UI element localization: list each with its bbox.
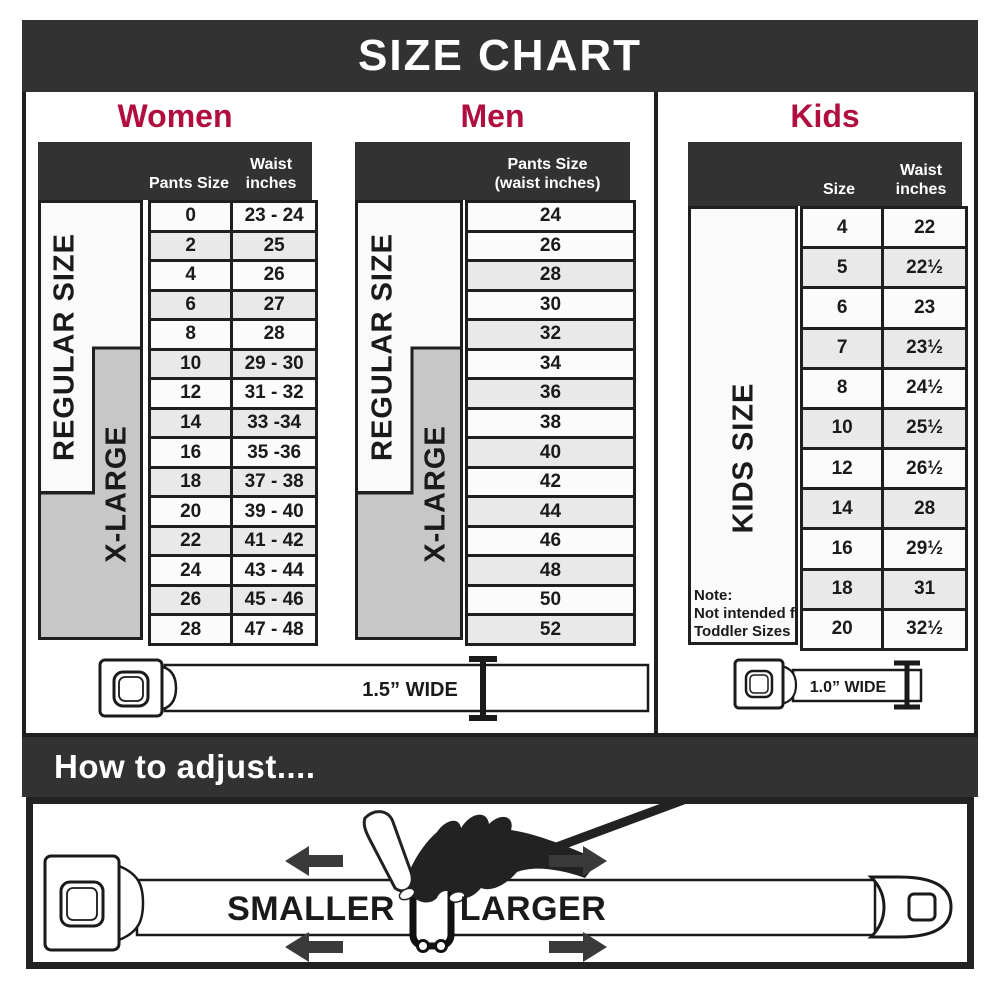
table-row: 14 28 xyxy=(803,490,965,527)
men-heading: Men xyxy=(355,98,630,135)
size-cell: 6 xyxy=(803,289,881,326)
table-row: 52 xyxy=(468,616,633,643)
size-chart-banner: SIZE CHART xyxy=(22,20,978,92)
arrow-left-bottom-icon xyxy=(285,932,343,962)
table-row: 50 xyxy=(468,587,633,614)
waist-cell: 24½ xyxy=(884,370,965,407)
table-row: 18 37 - 38 xyxy=(151,469,315,496)
size-cell: 44 xyxy=(468,498,633,525)
size-cell: 38 xyxy=(468,410,633,437)
larger-label: LARGER xyxy=(460,890,607,928)
size-cell: 42 xyxy=(468,469,633,496)
kids-note-line1: Note: xyxy=(694,587,732,604)
waist-cell: 47 - 48 xyxy=(233,616,315,643)
waist-cell: 35 -36 xyxy=(233,439,315,466)
table-row: 0 23 - 24 xyxy=(151,203,315,230)
waist-cell: 41 - 42 xyxy=(233,528,315,555)
size-cell: 32 xyxy=(468,321,633,348)
waist-cell: 23 xyxy=(884,289,965,326)
kids-rows: 4 22 5 22½ 6 23 7 23½ 8 24½ 10 25½ 12 26… xyxy=(800,206,968,651)
waist-cell: 31 xyxy=(884,571,965,608)
table-row: 48 xyxy=(468,557,633,584)
table-row: 30 xyxy=(468,292,633,319)
waist-cell: 45 - 46 xyxy=(233,587,315,614)
buckle-button-inner xyxy=(67,888,97,920)
waist-cell: 28 xyxy=(233,321,315,348)
buckle-button-inner xyxy=(119,677,143,701)
waist-cell: 26 xyxy=(233,262,315,289)
women-size-range-labels: REGULAR SIZE X-LARGE xyxy=(38,200,143,640)
table-row: 24 xyxy=(468,203,633,230)
kids-note-line3: Toddler Sizes (T) xyxy=(694,623,798,640)
size-cell: 12 xyxy=(803,450,881,487)
adjust-illustration: SMALLER LARGER xyxy=(33,804,967,962)
kids-table-header: Size Waist inches xyxy=(688,142,962,206)
table-row: 12 26½ xyxy=(803,450,965,487)
size-cell: 20 xyxy=(151,498,230,525)
table-row: 36 xyxy=(468,380,633,407)
size-cell: 18 xyxy=(151,469,230,496)
women-heading: Women xyxy=(38,98,312,135)
table-row: 10 29 - 30 xyxy=(151,351,315,378)
regular-size-label: REGULAR SIZE xyxy=(367,233,399,461)
kids-belt-illustration: 1.0” WIDE xyxy=(725,652,973,714)
size-cell: 24 xyxy=(468,203,633,230)
kids-note-line2: Not intended for xyxy=(694,605,798,622)
men-size-range-labels: REGULAR SIZE X-LARGE xyxy=(355,200,463,640)
x-large-label: X-LARGE xyxy=(420,425,452,563)
size-cell: 50 xyxy=(468,587,633,614)
waist-cell: 33 -34 xyxy=(233,410,315,437)
table-row: 4 26 xyxy=(151,262,315,289)
table-row: 46 xyxy=(468,528,633,555)
size-cell: 52 xyxy=(468,616,633,643)
size-cell: 36 xyxy=(468,380,633,407)
women-col-waist: Waist inches xyxy=(230,142,312,200)
smaller-label: SMALLER xyxy=(227,890,395,928)
kids-col-waist: Waist inches xyxy=(880,142,962,206)
adult-belt-illustration: 1.5” WIDE xyxy=(95,651,655,729)
size-cell: 4 xyxy=(151,262,230,289)
table-row: 2 25 xyxy=(151,233,315,260)
kids-size-label: KIDS SIZE xyxy=(728,383,760,534)
how-to-adjust-title: How to adjust.... xyxy=(54,748,316,786)
kids-heading: Kids xyxy=(688,98,962,135)
table-row: 24 43 - 44 xyxy=(151,557,315,584)
size-cell: 14 xyxy=(803,490,881,527)
table-row: 34 xyxy=(468,351,633,378)
size-cell: 8 xyxy=(803,370,881,407)
kids-belt-width-label: 1.0” WIDE xyxy=(810,679,887,696)
table-row: 28 xyxy=(468,262,633,289)
table-row: 44 xyxy=(468,498,633,525)
table-row: 32 xyxy=(468,321,633,348)
size-cell: 28 xyxy=(151,616,230,643)
table-row: 16 29½ xyxy=(803,530,965,567)
size-cell: 4 xyxy=(803,209,881,246)
waist-cell: 43 - 44 xyxy=(233,557,315,584)
size-cell: 5 xyxy=(803,249,881,286)
regular-size-label: REGULAR SIZE xyxy=(49,233,81,461)
size-chart-infographic: SIZE CHART Women Men Kids Pants Size Wai… xyxy=(0,0,1000,1000)
kids-col-size: Size xyxy=(800,142,878,206)
page-title: SIZE CHART xyxy=(358,31,642,81)
table-row: 20 39 - 40 xyxy=(151,498,315,525)
size-cell: 10 xyxy=(151,351,230,378)
size-cell: 34 xyxy=(468,351,633,378)
table-row: 18 31 xyxy=(803,571,965,608)
arrow-right-bottom-icon xyxy=(549,932,607,962)
adjust-illustration-box: SMALLER LARGER xyxy=(26,797,974,969)
waist-cell: 29½ xyxy=(884,530,965,567)
size-cell: 22 xyxy=(151,528,230,555)
table-row: 40 xyxy=(468,439,633,466)
size-cell: 46 xyxy=(468,528,633,555)
kids-size-range-labels: KIDS SIZE Note: Not intended for Toddler… xyxy=(688,206,798,645)
table-row: 4 22 xyxy=(803,209,965,246)
table-row: 22 41 - 42 xyxy=(151,528,315,555)
size-cell: 26 xyxy=(468,233,633,260)
waist-cell: 25½ xyxy=(884,410,965,447)
size-cell: 2 xyxy=(151,233,230,260)
size-cell: 26 xyxy=(151,587,230,614)
waist-cell: 23½ xyxy=(884,330,965,367)
slider-foot-right xyxy=(436,941,447,952)
size-cell: 14 xyxy=(151,410,230,437)
size-cell: 0 xyxy=(151,203,230,230)
belt-tip-slot xyxy=(909,894,935,920)
slider-foot-left xyxy=(418,941,429,952)
kids-size-table: Size Waist inches KIDS SIZE Note: Not in… xyxy=(688,142,962,645)
waist-cell: 25 xyxy=(233,233,315,260)
table-row: 6 27 xyxy=(151,292,315,319)
size-cell: 6 xyxy=(151,292,230,319)
table-row: 14 33 -34 xyxy=(151,410,315,437)
waist-cell: 29 - 30 xyxy=(233,351,315,378)
arrow-left-top-icon xyxy=(285,846,343,876)
size-cell: 10 xyxy=(803,410,881,447)
waist-cell: 27 xyxy=(233,292,315,319)
size-cell: 20 xyxy=(803,611,881,648)
adult-belt-width-label: 1.5” WIDE xyxy=(362,679,458,701)
size-cell: 8 xyxy=(151,321,230,348)
table-row: 6 23 xyxy=(803,289,965,326)
table-row: 16 35 -36 xyxy=(151,439,315,466)
table-row: 7 23½ xyxy=(803,330,965,367)
waist-cell: 28 xyxy=(884,490,965,527)
waist-cell: 26½ xyxy=(884,450,965,487)
size-cell: 40 xyxy=(468,439,633,466)
waist-cell: 32½ xyxy=(884,611,965,648)
how-to-adjust-banner: How to adjust.... xyxy=(22,737,978,797)
women-table-header: Pants Size Waist inches xyxy=(38,142,312,200)
table-row: 26 xyxy=(468,233,633,260)
waist-cell: 22½ xyxy=(884,249,965,286)
men-col-pants-size: Pants Size (waist inches) xyxy=(465,142,630,200)
women-size-table: Pants Size Waist inches REGULAR SIZE X-L… xyxy=(38,142,312,640)
men-size-table: Pants Size (waist inches) REGULAR SIZE X… xyxy=(355,142,630,640)
table-row: 42 xyxy=(468,469,633,496)
size-cell: 24 xyxy=(151,557,230,584)
size-cell: 12 xyxy=(151,380,230,407)
waist-cell: 23 - 24 xyxy=(233,203,315,230)
size-cell: 18 xyxy=(803,571,881,608)
table-row: 38 xyxy=(468,410,633,437)
table-row: 8 28 xyxy=(151,321,315,348)
waist-cell: 22 xyxy=(884,209,965,246)
waist-cell: 31 - 32 xyxy=(233,380,315,407)
size-cell: 7 xyxy=(803,330,881,367)
table-row: 28 47 - 48 xyxy=(151,616,315,643)
men-rows: 24 26 28 30 32 34 36 38 40 42 xyxy=(465,200,636,646)
waist-cell: 37 - 38 xyxy=(233,469,315,496)
table-row: 8 24½ xyxy=(803,370,965,407)
table-row: 20 32½ xyxy=(803,611,965,648)
size-cell: 48 xyxy=(468,557,633,584)
x-large-label: X-LARGE xyxy=(101,425,133,563)
buckle-button-inner xyxy=(750,675,768,693)
waist-cell: 39 - 40 xyxy=(233,498,315,525)
size-cell: 16 xyxy=(803,530,881,567)
table-row: 10 25½ xyxy=(803,410,965,447)
table-row: 12 31 - 32 xyxy=(151,380,315,407)
table-row: 5 22½ xyxy=(803,249,965,286)
men-table-header: Pants Size (waist inches) xyxy=(355,142,630,200)
table-row: 26 45 - 46 xyxy=(151,587,315,614)
women-col-pants-size: Pants Size xyxy=(148,142,230,200)
size-cell: 16 xyxy=(151,439,230,466)
size-cell: 28 xyxy=(468,262,633,289)
women-rows: 0 23 - 24 2 25 4 26 6 27 8 28 10 29 - 30… xyxy=(148,200,318,646)
size-cell: 30 xyxy=(468,292,633,319)
